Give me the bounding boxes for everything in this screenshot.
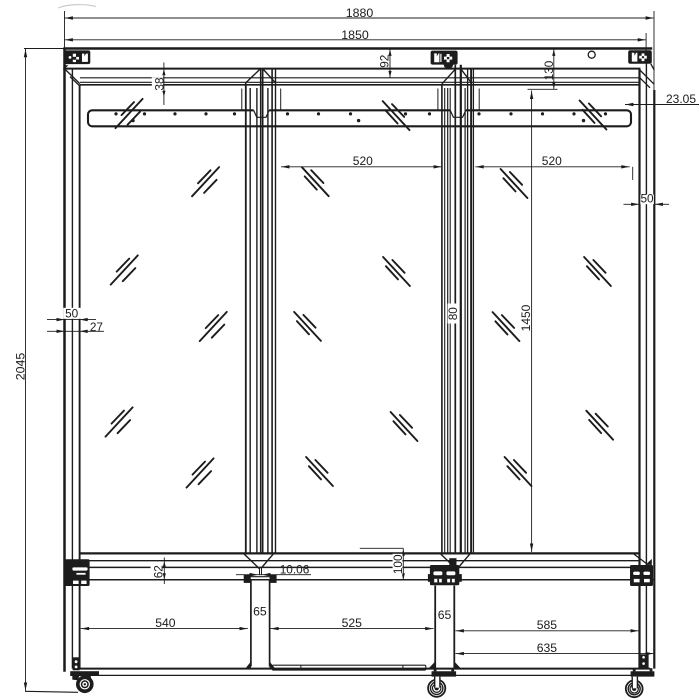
svg-text:38: 38: [152, 77, 166, 91]
svg-text:1450: 1450: [519, 304, 533, 331]
svg-text:50: 50: [65, 306, 79, 320]
svg-text:585: 585: [537, 618, 558, 632]
svg-text:100: 100: [391, 554, 405, 574]
svg-text:540: 540: [155, 616, 176, 630]
svg-text:92: 92: [377, 55, 391, 68]
svg-text:80: 80: [446, 307, 460, 321]
svg-text:520: 520: [353, 154, 373, 168]
svg-text:10.06: 10.06: [280, 562, 310, 576]
svg-text:525: 525: [342, 616, 363, 630]
svg-text:50: 50: [640, 192, 654, 206]
svg-text:1850: 1850: [341, 28, 369, 42]
svg-text:635: 635: [537, 641, 558, 655]
svg-text:65: 65: [253, 605, 267, 619]
svg-text:23.05: 23.05: [666, 92, 696, 106]
svg-text:1880: 1880: [346, 6, 374, 20]
svg-text:2045: 2045: [14, 353, 28, 381]
svg-text:62: 62: [151, 565, 165, 578]
svg-text:65: 65: [438, 608, 452, 622]
svg-text:130: 130: [542, 60, 556, 80]
svg-text:520: 520: [542, 154, 562, 168]
